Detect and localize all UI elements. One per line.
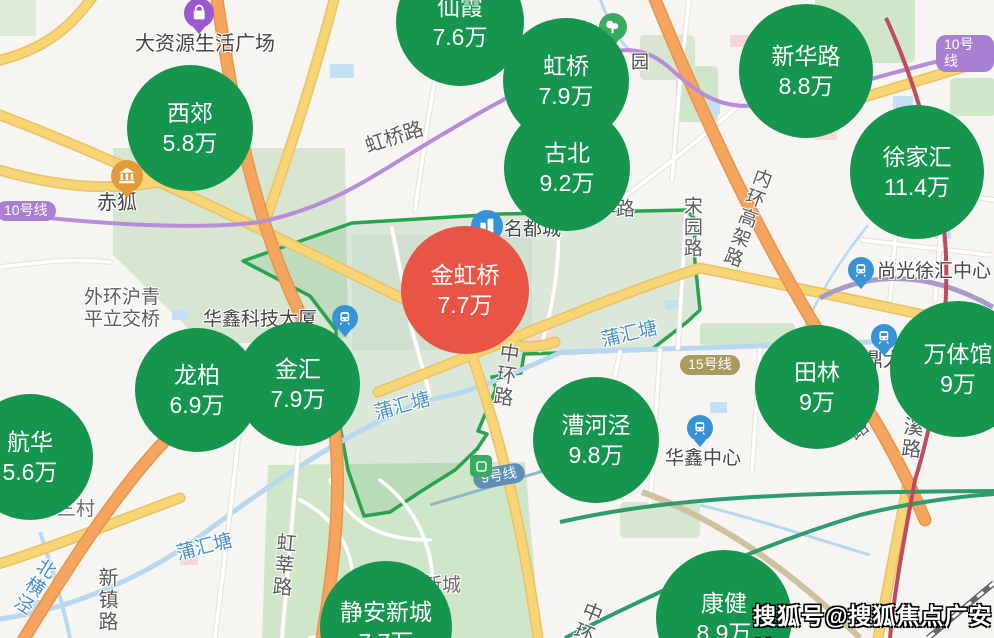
district-name: 虹桥 [543,51,589,81]
district-price: 5.8万 [163,128,218,158]
price-bubble-jinhongqiao-selected[interactable]: 金虹桥 7.7万 [401,226,529,354]
poi-label-daziyuan-plaza: 大资源生活广场 [135,33,275,56]
district-price: 7.7万 [438,290,493,320]
district-name: 静安新城 [340,597,432,627]
metro-line10-badge-left: 10号线 [0,201,56,221]
district-price: 7.9万 [271,384,326,414]
district-price: 11.4万 [884,172,950,202]
poi-green-icon [470,455,492,477]
district-name: 金虹桥 [431,260,500,290]
price-bubble-xujiahui[interactable]: 徐家汇 11.4万 [850,105,984,239]
district-name: 徐家汇 [883,142,952,172]
road-label-waihuan-interchange: 外环沪青平立交桥 [78,287,166,331]
district-name: 龙柏 [174,360,220,390]
district-price: 8.8万 [779,71,834,101]
district-price: 9万 [940,369,976,399]
district-price: 9.8万 [569,440,624,470]
district-price: 7.7万 [359,627,414,638]
metro-line10-badge-right: 10号线 [936,35,994,72]
price-bubble-tianlin[interactable]: 田林 9万 [755,325,879,449]
price-bubble-gubei[interactable]: 古北 9.2万 [504,105,630,231]
price-bubble-xinhualu[interactable]: 新华路 8.8万 [739,4,873,138]
district-price: 8.9万 [697,618,752,638]
metro-station-icon [332,305,358,331]
metro-line15-badge: 15号线 [680,355,740,375]
poi-label-shangguang-xuhui-center: 尚光徐汇中心 [877,261,991,283]
district-name: 仙霞 [437,0,483,22]
price-bubble-caohejing[interactable]: 漕河泾 9.8万 [533,377,659,503]
watermark: 搜狐号@搜狐焦点广安站 [753,597,994,638]
district-name: 万体馆 [924,339,993,369]
district-price: 7.6万 [433,22,488,52]
district-name: 田林 [794,357,840,387]
road-label-songyuan-rd: 宋园路 [680,196,702,259]
district-price: 9万 [799,387,835,417]
district-price: 6.9万 [170,390,225,420]
district-name: 新华路 [772,41,841,71]
poi-label-huaxin-center: 华鑫中心 [665,448,741,470]
district-name: 康健 [701,588,747,618]
district-name: 古北 [544,138,590,168]
district-name: 西郊 [167,98,213,128]
price-bubble-xijiao[interactable]: 西郊 5.8万 [127,65,253,191]
price-bubble-jinhui[interactable]: 金汇 7.9万 [236,322,360,446]
district-price: 5.6万 [3,457,58,487]
metro-station-icon [687,415,713,441]
metro-station-icon [848,257,874,283]
district-price: 9.2万 [540,168,595,198]
map-canvas[interactable]: 大资源生活广场 赤狐 园 华鑫科技大厦 名都城 尚光徐汇中心 华鑫中心 鼎太 安… [0,0,994,638]
district-name: 金汇 [275,354,321,384]
road-label-xinzhen-rd: 新镇路 [94,567,117,633]
poi-label-park-fragment: 园 [631,52,649,73]
district-name: 航华 [7,427,53,457]
district-name: 漕河泾 [562,410,631,440]
